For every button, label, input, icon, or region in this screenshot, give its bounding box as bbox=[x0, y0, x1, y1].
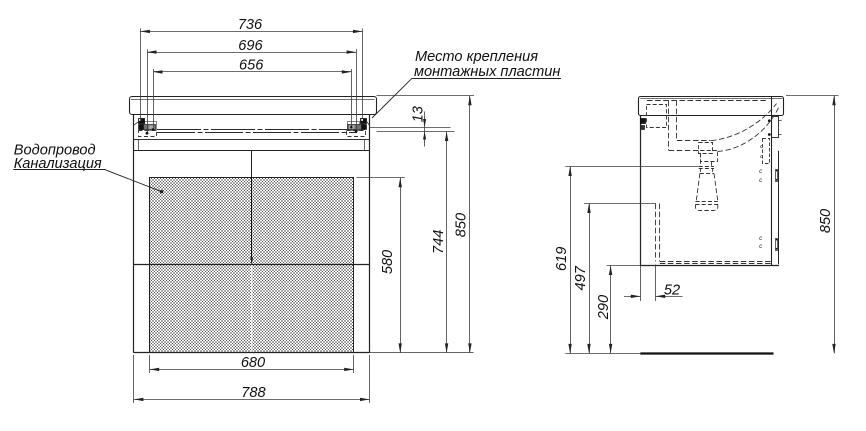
svg-text:696: 696 bbox=[238, 38, 263, 54]
svg-text:Место крепления: Место крепления bbox=[415, 49, 538, 65]
svg-text:850: 850 bbox=[453, 213, 469, 237]
svg-text:13: 13 bbox=[411, 106, 427, 122]
svg-text:52: 52 bbox=[664, 282, 680, 298]
svg-text:788: 788 bbox=[241, 385, 266, 401]
svg-text:744: 744 bbox=[431, 230, 447, 254]
svg-text:монтажных пластин: монтажных пластин bbox=[414, 64, 560, 80]
svg-text:c: c bbox=[759, 236, 762, 242]
svg-text:736: 736 bbox=[238, 17, 263, 33]
svg-text:c: c bbox=[759, 178, 762, 184]
svg-text:c: c bbox=[759, 244, 762, 250]
svg-text:850: 850 bbox=[818, 209, 834, 233]
svg-text:680: 680 bbox=[241, 355, 265, 371]
svg-text:619: 619 bbox=[554, 247, 570, 271]
svg-text:c: c bbox=[759, 169, 762, 175]
svg-text:497: 497 bbox=[573, 265, 589, 290]
svg-text:656: 656 bbox=[239, 58, 264, 74]
svg-text:580: 580 bbox=[380, 250, 396, 274]
svg-text:290: 290 bbox=[596, 295, 612, 320]
